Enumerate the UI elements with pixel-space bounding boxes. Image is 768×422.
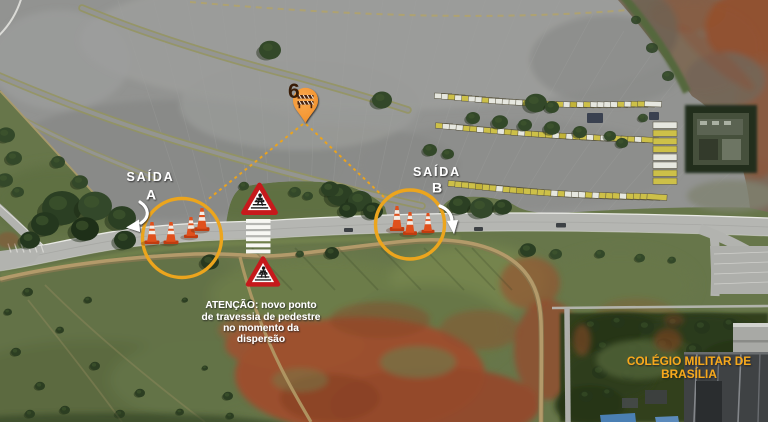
svg-text:dispersão: dispersão xyxy=(237,334,285,345)
svg-text:BRASÍLIA: BRASÍLIA xyxy=(661,367,717,381)
svg-text:COLÉGIO MILITAR DE: COLÉGIO MILITAR DE xyxy=(627,354,751,368)
svg-text:de travessia de pedestre: de travessia de pedestre xyxy=(202,312,321,323)
svg-text:SAÍDA: SAÍDA xyxy=(413,164,461,179)
svg-text:SAÍDA: SAÍDA xyxy=(127,169,175,184)
svg-text:A: A xyxy=(146,187,156,203)
svg-text:B: B xyxy=(432,180,442,196)
svg-text:ATENÇÃO: novo ponto: ATENÇÃO: novo ponto xyxy=(205,298,316,311)
svg-text:6: 6 xyxy=(288,80,300,103)
svg-text:no momento da: no momento da xyxy=(223,323,299,334)
